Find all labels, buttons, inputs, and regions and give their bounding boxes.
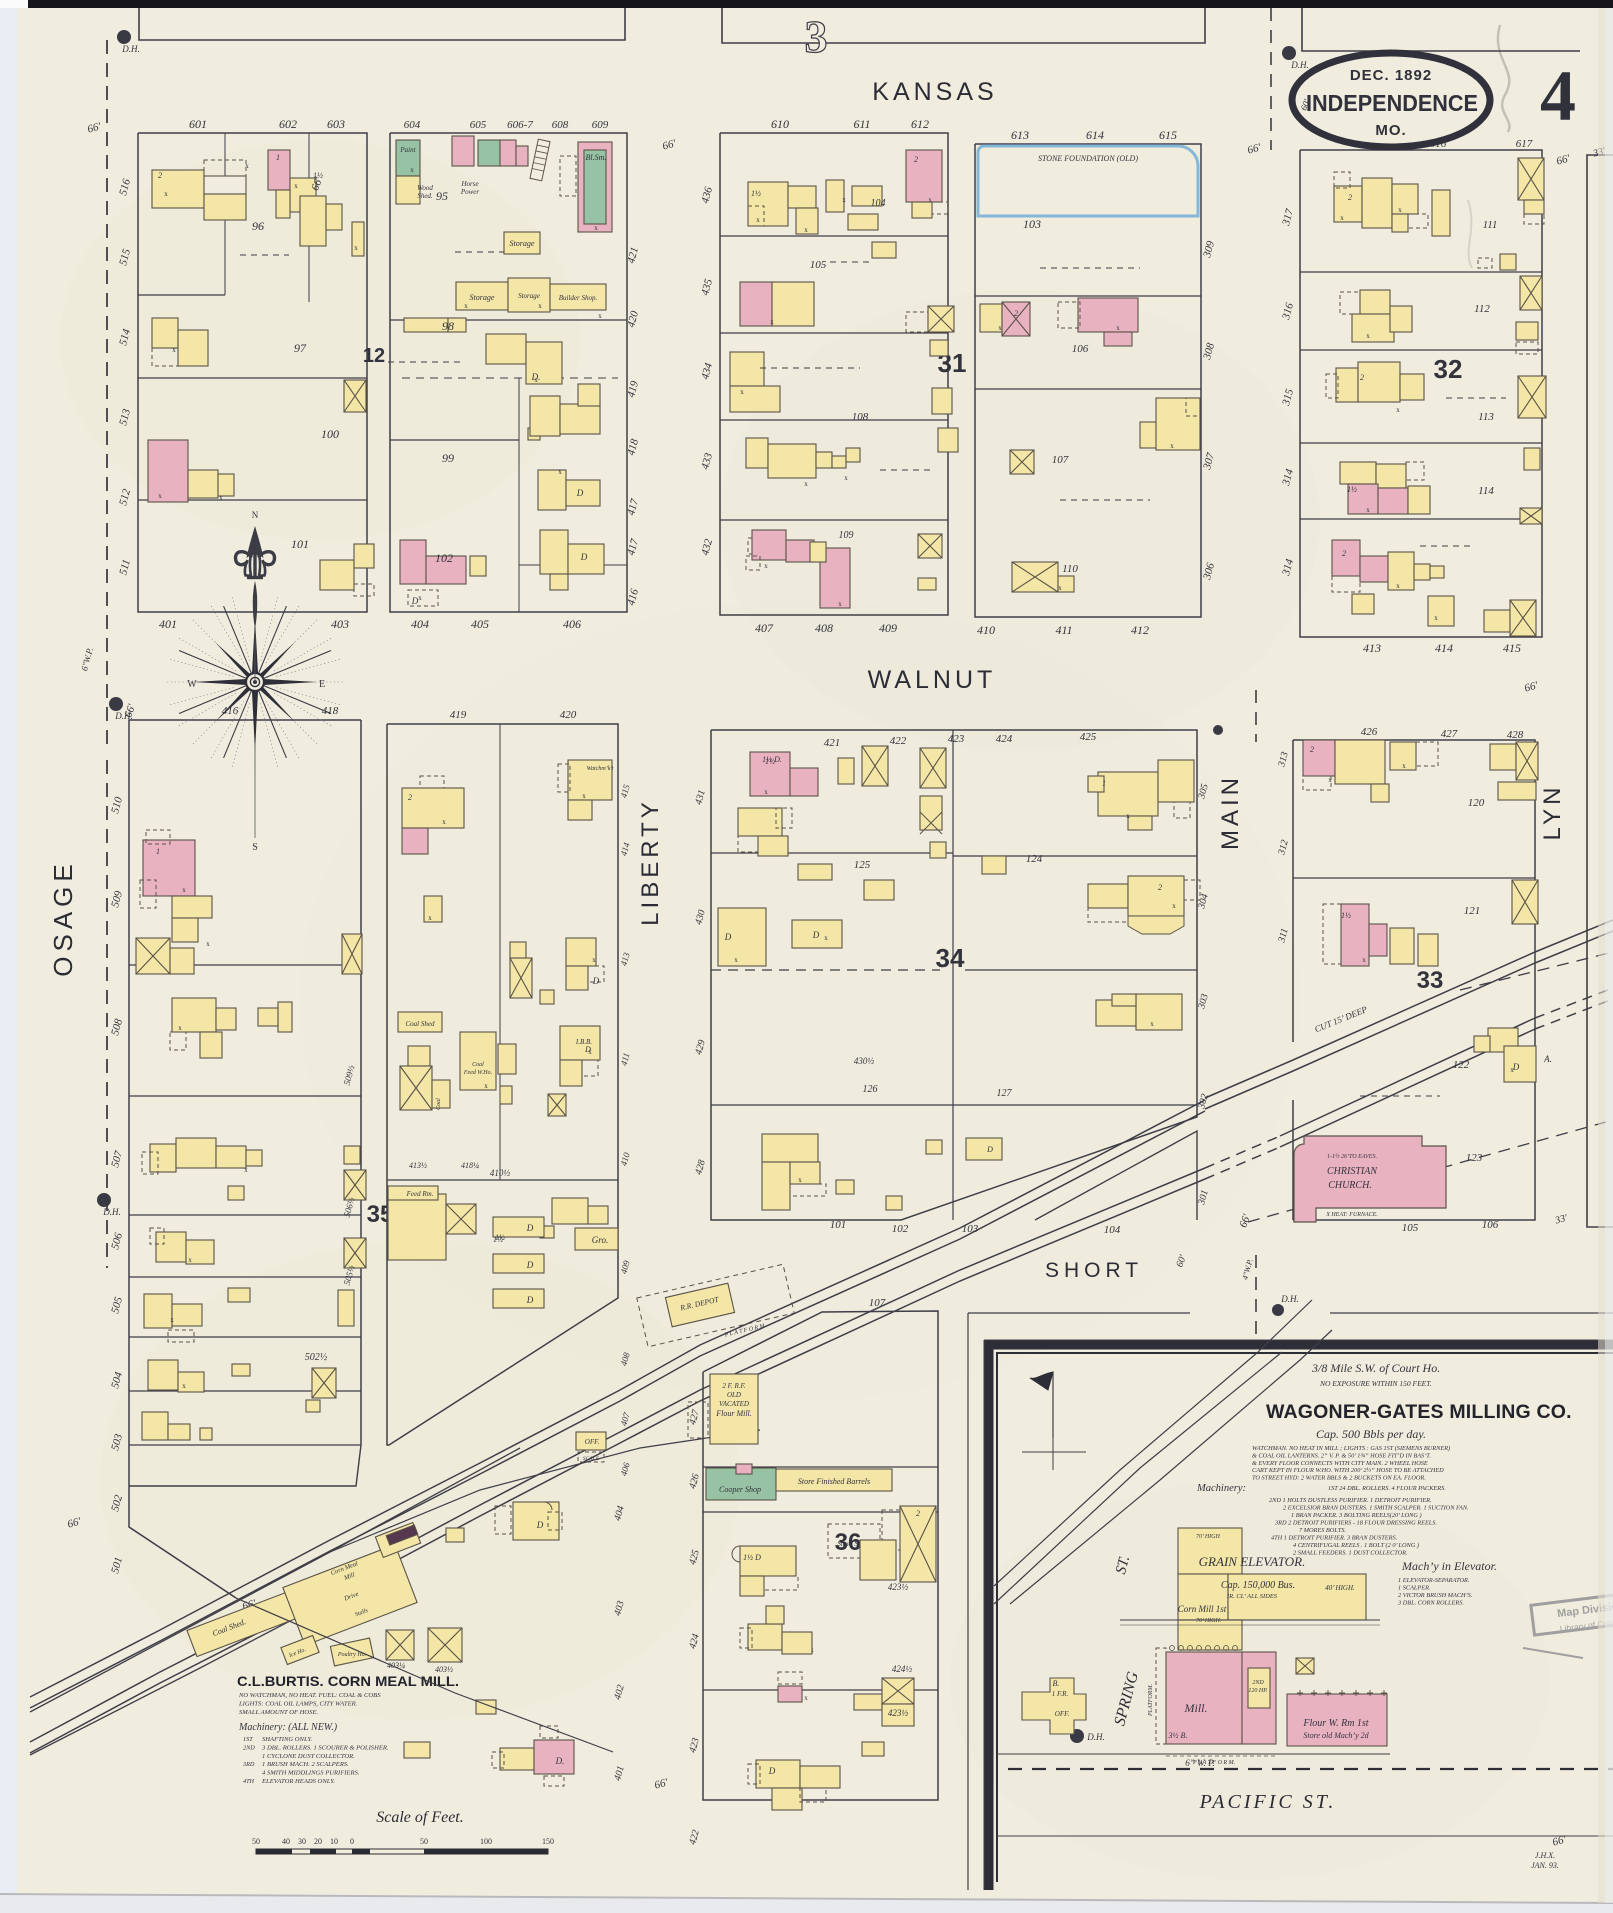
svg-text:A.: A. (1543, 1054, 1552, 1064)
svg-text:124: 124 (1026, 853, 1043, 865)
svg-text:418¼: 418¼ (461, 1161, 479, 1170)
svg-text:x: x (824, 934, 828, 942)
svg-text:608: 608 (552, 119, 569, 131)
svg-text:Machinery:: Machinery: (1196, 1483, 1246, 1494)
svg-text:x: x (1116, 324, 1120, 332)
svg-text:Scale of Feet.: Scale of Feet. (376, 1809, 464, 1826)
svg-text:WATCHMAN. NO HEAT IN MILL ; LI: WATCHMAN. NO HEAT IN MILL ; LIGHTS : GAS… (1252, 1445, 1450, 1452)
svg-text:120: 120 (1468, 797, 1485, 809)
svg-text:x: x (740, 388, 744, 396)
svg-text:405: 405 (471, 617, 489, 631)
svg-text:Power: Power (460, 188, 480, 196)
svg-text:414: 414 (1435, 641, 1453, 655)
svg-text:101: 101 (291, 537, 309, 551)
svg-text:100: 100 (321, 427, 339, 441)
svg-text:Watchm’k’t: Watchm’k’t (587, 766, 614, 772)
svg-text:x: x (1510, 1066, 1514, 1074)
svg-text:x: x (844, 474, 848, 482)
svg-text:1½: 1½ (1341, 911, 1351, 920)
svg-text:430½: 430½ (854, 1056, 875, 1066)
svg-text:102: 102 (435, 551, 453, 565)
svg-text:x: x (170, 1316, 174, 1324)
svg-text:Machinery: (ALL NEW.): Machinery: (ALL NEW.) (238, 1722, 338, 1733)
svg-text:C.L.BURTIS. CORN MEAL MILL.: C.L.BURTIS. CORN MEAL MILL. (237, 1673, 459, 1689)
svg-text:2: 2 (916, 1509, 920, 1518)
svg-text:GRAIN ELEVATOR.: GRAIN ELEVATOR. (1199, 1554, 1306, 1569)
svg-text:113: 113 (1478, 411, 1494, 423)
svg-text:LIGHTS: COAL OIL LAMPS, CITY: LIGHTS: COAL OIL LAMPS, CITY WATER. (238, 1701, 358, 1708)
svg-text:SMALL AMOUNT OF HOSE.: SMALL AMOUNT OF HOSE. (239, 1709, 318, 1716)
svg-text:x: x (592, 956, 596, 964)
svg-text:OFF.: OFF. (1055, 1710, 1070, 1718)
svg-text:95: 95 (436, 189, 448, 203)
svg-text:2: 2 (1348, 193, 1352, 202)
svg-text:50: 50 (420, 1837, 428, 1846)
svg-text:OLD: OLD (727, 1391, 741, 1399)
svg-text:99: 99 (442, 451, 454, 465)
svg-text:606-7: 606-7 (507, 119, 533, 131)
svg-text:70’ HIGH: 70’ HIGH (1196, 1534, 1220, 1540)
svg-text:110: 110 (1062, 563, 1078, 575)
svg-text:x: x (1328, 776, 1332, 784)
svg-text:x: x (294, 182, 298, 190)
svg-text:7 MORES BOLTS.: 7 MORES BOLTS. (1299, 1527, 1346, 1534)
svg-text:S: S (252, 842, 258, 853)
svg-text:3/8 Mile S.W. of Court Ho.: 3/8 Mile S.W. of Court Ho. (1311, 1361, 1440, 1375)
svg-text:3½ B.: 3½ B. (1168, 1731, 1188, 1740)
svg-text:2: 2 (1360, 373, 1364, 382)
svg-text:x: x (1398, 206, 1402, 214)
svg-text:Horse: Horse (460, 180, 478, 188)
svg-text:120 HP.: 120 HP. (1248, 1688, 1267, 1694)
svg-text:2: 2 (1310, 745, 1314, 754)
svg-text:106: 106 (1482, 1219, 1499, 1231)
svg-text:Bl.Sm.: Bl.Sm. (586, 153, 607, 162)
svg-text:424: 424 (996, 733, 1013, 745)
svg-text:3 DBL. ROLLERS. 1 SCOURER & PO: 3 DBL. ROLLERS. 1 SCOURER & POLISHER. (261, 1744, 389, 1751)
svg-text:1½ D: 1½ D (743, 1553, 761, 1562)
svg-text:x: x (838, 600, 842, 608)
svg-text:Paint: Paint (399, 146, 416, 154)
svg-text:x: x (1366, 332, 1370, 340)
svg-text:x: x (770, 318, 774, 326)
svg-text:420: 420 (560, 709, 577, 721)
svg-text:401: 401 (159, 617, 177, 631)
svg-text:103: 103 (962, 1223, 979, 1235)
svg-text:D: D (576, 488, 584, 498)
svg-text:x: x (484, 1082, 488, 1090)
svg-text:x: x (1058, 584, 1062, 592)
svg-text:x: x (598, 312, 602, 320)
svg-text:112: 112 (1474, 303, 1490, 315)
svg-text:601: 601 (189, 117, 207, 131)
svg-text:410: 410 (977, 623, 995, 637)
svg-text:1ST 24 DBL. ROLLERS. 4 FLOUR: 1ST 24 DBL. ROLLERS. 4 FLOUR PACKERS. (1328, 1485, 1446, 1492)
svg-text:D: D (526, 1295, 534, 1305)
svg-text:x: x (1126, 812, 1130, 820)
svg-text:Gro.: Gro. (592, 1235, 608, 1245)
svg-text:1½: 1½ (765, 757, 775, 766)
svg-text:MO.: MO. (1375, 122, 1406, 139)
svg-text:Storage: Storage (510, 239, 535, 248)
svg-text:Corn Mill 1st: Corn Mill 1st (1178, 1604, 1227, 1614)
svg-text:x: x (428, 914, 432, 922)
svg-text:x: x (1396, 406, 1400, 414)
svg-text:x: x (464, 302, 468, 310)
svg-text:x: x (172, 346, 176, 354)
svg-text:WALNUT: WALNUT (868, 666, 997, 694)
svg-text:D.H.: D.H. (1290, 60, 1309, 70)
svg-text:D.H.: D.H. (1086, 1732, 1105, 1742)
svg-text:105: 105 (1402, 1222, 1419, 1234)
svg-text:x: x (534, 376, 538, 384)
svg-text:150: 150 (542, 1837, 554, 1846)
svg-text:x: x (178, 1024, 182, 1032)
svg-text:411: 411 (1055, 623, 1072, 637)
svg-text:1 CYCLONE DUST COLLECTOR.: 1 CYCLONE DUST COLLECTOR. (262, 1753, 355, 1760)
svg-text:MAIN: MAIN (1217, 774, 1244, 850)
svg-text:108: 108 (852, 411, 869, 423)
svg-text:x: x (219, 494, 223, 502)
svg-text:D: D (812, 930, 820, 940)
svg-text:40: 40 (282, 1837, 290, 1846)
svg-text:2ND: 2ND (1252, 1680, 1264, 1686)
svg-text:Coal: Coal (436, 1098, 442, 1110)
svg-text:96: 96 (252, 219, 264, 233)
svg-text:1½: 1½ (1347, 485, 1357, 494)
svg-text:SCALE: SCALE (583, 1456, 600, 1462)
svg-text:Flour W. Rm 1st: Flour W. Rm 1st (1302, 1718, 1368, 1729)
svg-text:109: 109 (839, 530, 854, 541)
svg-text:4 SMITH MIDDLINGS PURIFIERS.: 4 SMITH MIDDLINGS PURIFIERS. (262, 1770, 360, 1777)
svg-text:x: x (1366, 506, 1370, 514)
svg-text:102: 102 (892, 1223, 909, 1235)
svg-text:424½: 424½ (892, 1664, 913, 1674)
svg-text:426: 426 (1361, 726, 1378, 738)
svg-text:x: x (1150, 1020, 1154, 1028)
svg-text:409: 409 (879, 621, 897, 635)
svg-text:605: 605 (470, 119, 487, 131)
svg-text:x: x (206, 940, 210, 948)
svg-text:122: 122 (1453, 1059, 1470, 1071)
svg-text:408: 408 (815, 621, 833, 635)
svg-text:40’ HIGH.: 40’ HIGH. (1325, 1584, 1355, 1592)
svg-text:DEC. 1892: DEC. 1892 (1350, 67, 1432, 84)
svg-text:421: 421 (824, 737, 841, 749)
svg-text:125: 125 (854, 859, 871, 871)
svg-text:33: 33 (1417, 967, 1444, 994)
svg-text:D.H.: D.H. (121, 44, 140, 54)
svg-text:Flour Mill.: Flour Mill. (715, 1409, 752, 1418)
svg-text:34: 34 (936, 943, 965, 973)
svg-text:x: x (164, 190, 168, 198)
svg-text:127: 127 (997, 1088, 1013, 1099)
svg-text:N: N (252, 510, 259, 520)
svg-text:D.H.: D.H. (102, 1207, 121, 1217)
svg-text:KANSAS: KANSAS (872, 78, 997, 106)
svg-text:Coal Shed: Coal Shed (406, 1020, 435, 1028)
svg-text:x: x (798, 1176, 802, 1184)
svg-text:423: 423 (948, 733, 965, 745)
svg-text:2: 2 (1014, 309, 1018, 318)
svg-text:x: x (1170, 442, 1174, 450)
svg-text:x: x (764, 562, 768, 570)
svg-text:x: x (804, 226, 808, 234)
svg-text:611: 611 (853, 117, 870, 131)
svg-text:10: 10 (330, 1837, 338, 1846)
svg-text:70’ HIGH.: 70’ HIGH. (1196, 1618, 1221, 1624)
svg-text:107: 107 (1052, 454, 1069, 466)
svg-text:TO STREET HYD: 2 WATER BBLS: TO STREET HYD: 2 WATER BBLS & 2 BUCKETS … (1252, 1475, 1426, 1482)
svg-text:x: x (756, 216, 760, 224)
svg-text:x: x (764, 788, 768, 796)
svg-text:413½: 413½ (409, 1161, 427, 1170)
svg-text:410½: 410½ (490, 1168, 511, 1178)
svg-text:x: x (158, 492, 162, 500)
svg-text:617: 617 (1516, 138, 1533, 150)
svg-text:423½: 423½ (888, 1708, 909, 1718)
svg-text:2: 2 (158, 171, 162, 180)
svg-text:1: 1 (156, 847, 160, 856)
svg-text:32: 32 (1434, 354, 1463, 384)
svg-text:x: x (804, 480, 808, 488)
svg-text:4: 4 (1540, 56, 1576, 136)
svg-text:x: x (182, 1382, 186, 1390)
svg-text:106: 106 (1072, 343, 1089, 355)
svg-text:2 SMALL FEEDERS. 1 DUST COLLE: 2 SMALL FEEDERS. 1 DUST COLLECTOR. (1293, 1550, 1408, 1557)
svg-text:2: 2 (1158, 883, 1162, 892)
svg-text:Cap. 150,000 Bus.: Cap. 150,000 Bus. (1221, 1580, 1295, 1591)
svg-text:121: 121 (1464, 905, 1481, 917)
svg-text:LYN: LYN (1539, 784, 1566, 841)
svg-text:428: 428 (1507, 729, 1524, 741)
svg-text:2 F. R.F.: 2 F. R.F. (722, 1382, 746, 1390)
svg-text:403: 403 (331, 617, 349, 631)
svg-text:3: 3 (805, 11, 828, 62)
svg-text:1½: 1½ (751, 189, 761, 198)
svg-text:Storage: Storage (518, 292, 540, 300)
svg-text:Builder Shop.: Builder Shop. (559, 294, 598, 302)
svg-text:SHAFTING ONLY.: SHAFTING ONLY. (262, 1736, 313, 1743)
svg-text:1 BRUSH MACH. 2 SCALPERS.: 1 BRUSH MACH. 2 SCALPERS. (262, 1761, 349, 1768)
svg-text:2ND: 2ND (243, 1744, 255, 1751)
svg-text:B.: B. (1053, 1679, 1060, 1688)
svg-text:x: x (734, 956, 738, 964)
svg-text:105: 105 (810, 259, 827, 271)
svg-text:1ST: 1ST (243, 1736, 253, 1743)
svg-text:50: 50 (252, 1837, 260, 1846)
svg-text:1: 1 (276, 153, 280, 162)
svg-text:12: 12 (363, 345, 385, 367)
svg-text:x: x (998, 324, 1002, 332)
svg-text:602: 602 (279, 117, 297, 131)
svg-text:& EVERY FLOOR CONNECTS WITH CI: & EVERY FLOOR CONNECTS WITH CITY MAIN. 2… (1252, 1460, 1428, 1467)
svg-text:& COAL OIL LANTERNS. 2” V. P.: & COAL OIL LANTERNS. 2” V. P. & 50’ 1¾” … (1252, 1452, 1431, 1459)
svg-text:403¼: 403¼ (387, 1661, 405, 1670)
svg-text:98: 98 (442, 319, 454, 333)
svg-text:107: 107 (869, 1297, 886, 1309)
svg-text:1 ELEVATOR-SEPARATOR.: 1 ELEVATOR-SEPARATOR. (1398, 1577, 1469, 1584)
svg-text:CHRISTIAN: CHRISTIAN (1327, 1166, 1378, 1177)
svg-text:2: 2 (914, 155, 918, 164)
svg-text:423½: 423½ (888, 1582, 909, 1592)
svg-text:Feed Rm.: Feed Rm. (406, 1190, 434, 1198)
svg-text:104: 104 (871, 198, 886, 209)
svg-text:INDEPENDENCE: INDEPENDENCE (1306, 90, 1478, 116)
svg-text:PLATFORM.: PLATFORM. (1148, 1684, 1154, 1717)
svg-text:OFF.: OFF. (585, 1438, 600, 1446)
svg-text:2 EXCELSIOR BRAN DUSTERS. 1 S: 2 EXCELSIOR BRAN DUSTERS. 1 SMITH SCALPE… (1283, 1505, 1469, 1512)
svg-text:D: D (724, 932, 732, 942)
svg-text:Cap. 500 Bbls per day.: Cap. 500 Bbls per day. (1316, 1427, 1426, 1441)
svg-text:OSAGE: OSAGE (48, 859, 78, 976)
svg-text:x: x (588, 1048, 592, 1056)
svg-text:0: 0 (350, 1837, 354, 1846)
svg-text:Shed.: Shed. (417, 192, 433, 200)
svg-text:2 VICTOR BRUSH MACH’S.: 2 VICTOR BRUSH MACH’S. (1398, 1592, 1472, 1599)
svg-text:1-1½ 26’TO EAVES.: 1-1½ 26’TO EAVES. (1327, 1153, 1377, 1160)
svg-text:E: E (319, 679, 325, 690)
svg-text:604: 604 (404, 119, 421, 131)
svg-text:615: 615 (1159, 128, 1177, 142)
svg-text:WAGONER-GATES MILLING CO.: WAGONER-GATES MILLING CO. (1266, 1401, 1572, 1423)
svg-text:4TH 1 DETROIT PURIFIER. 3 BR: 4TH 1 DETROIT PURIFIER. 3 BRAN DUSTERS. (1271, 1535, 1397, 1542)
svg-text:30: 30 (298, 1837, 306, 1846)
svg-text:IR. CL’ ALL SIDES: IR. CL’ ALL SIDES (1226, 1593, 1278, 1600)
svg-text:x: x (842, 196, 846, 204)
svg-text:Coal: Coal (472, 1062, 484, 1068)
svg-text:x: x (1172, 902, 1176, 910)
svg-text:x: x (928, 196, 932, 204)
svg-text:W: W (187, 679, 197, 690)
svg-text:4 CENTRIFUGAL REELS . 1 BOLT (: 4 CENTRIFUGAL REELS . 1 BOLT (2 0’ LONG … (1293, 1542, 1419, 1549)
svg-text:LIBERTY: LIBERTY (637, 798, 664, 926)
svg-text:PACIFIC ST.: PACIFIC ST. (1199, 1791, 1337, 1813)
svg-text:114: 114 (1478, 485, 1494, 497)
svg-text:609: 609 (592, 119, 609, 131)
svg-text:104: 104 (1104, 1224, 1121, 1236)
svg-text:JAN. 93.: JAN. 93. (1531, 1861, 1559, 1870)
svg-text:x: x (244, 1166, 248, 1174)
svg-text:D: D (526, 1223, 534, 1233)
svg-text:NO WATCHMAN, NO HEAT. FUEL: CO: NO WATCHMAN, NO HEAT. FUEL: COAL & COBS (238, 1692, 381, 1699)
svg-text:613: 613 (1011, 128, 1029, 142)
svg-text:610: 610 (771, 117, 789, 131)
svg-text:3RD: 3RD (242, 1761, 255, 1768)
svg-text:D: D (768, 1766, 776, 1776)
svg-text:20: 20 (314, 1837, 322, 1846)
svg-text:603: 603 (327, 117, 345, 131)
svg-text:J.H.X.: J.H.X. (1535, 1851, 1555, 1860)
svg-text:6” W. P.: 6” W. P. (1185, 1758, 1215, 1768)
svg-text:x: x (354, 244, 358, 252)
svg-text:D: D (526, 1260, 534, 1270)
svg-text:D: D (592, 976, 600, 986)
svg-text:103: 103 (1023, 217, 1041, 231)
svg-text:1 F.R.: 1 F.R. (1052, 1690, 1069, 1698)
svg-text:4TH: 4TH (243, 1778, 255, 1785)
svg-text:D: D (536, 1520, 544, 1530)
svg-text:1: 1 (1102, 779, 1106, 788)
svg-text:x: x (418, 594, 422, 602)
svg-text:Wood: Wood (417, 184, 433, 192)
svg-text:VACATED: VACATED (719, 1400, 749, 1408)
svg-text:2ND 1 HOLTS DUSTLESS PURIFI: 2ND 1 HOLTS DUSTLESS PURIFIER. 1 DETROIT… (1269, 1497, 1432, 1504)
svg-text:D.H.: D.H. (1280, 1294, 1299, 1304)
svg-text:101: 101 (830, 1219, 847, 1231)
svg-text:x: x (1362, 956, 1366, 964)
svg-text:D.: D. (555, 1756, 565, 1766)
svg-text:STONE FOUNDATION (OLD): STONE FOUNDATION (OLD) (1038, 154, 1138, 163)
svg-text:x: x (804, 1694, 808, 1702)
svg-text:x: x (1396, 582, 1400, 590)
svg-text:425: 425 (1080, 731, 1097, 743)
svg-text:ELEVATOR HEADS ONLY.: ELEVATOR HEADS ONLY. (261, 1778, 335, 1785)
svg-text:Mill.: Mill. (1184, 1701, 1208, 1715)
svg-text:404: 404 (411, 617, 429, 631)
svg-text:CHURCH.: CHURCH. (1328, 1180, 1372, 1191)
svg-text:614: 614 (1086, 128, 1104, 142)
svg-text:502½: 502½ (305, 1352, 328, 1363)
svg-text:97: 97 (294, 341, 307, 355)
svg-text:427: 427 (1441, 728, 1458, 740)
svg-text:412: 412 (1131, 623, 1149, 637)
svg-text:2: 2 (1342, 549, 1346, 558)
svg-text:1½: 1½ (493, 1235, 503, 1244)
svg-text:x: x (188, 1256, 192, 1264)
svg-text:413: 413 (1363, 641, 1381, 655)
svg-text:Store old Mach’y 2d: Store old Mach’y 2d (1303, 1731, 1369, 1740)
svg-text:x: x (1402, 762, 1406, 770)
svg-text:x: x (1434, 614, 1438, 622)
svg-text:415: 415 (1503, 641, 1521, 655)
svg-text:422: 422 (890, 735, 907, 747)
svg-text:Store Finished Barrels: Store Finished Barrels (798, 1477, 870, 1486)
svg-text:NO EXPOSURE WITHIN 150 FEET.: NO EXPOSURE WITHIN 150 FEET. (1319, 1379, 1432, 1388)
svg-text:406: 406 (563, 617, 581, 631)
svg-text:2: 2 (408, 793, 412, 802)
svg-text:x: x (582, 792, 586, 800)
svg-text:D: D (986, 1145, 993, 1154)
svg-text:407: 407 (755, 621, 774, 635)
svg-text:419: 419 (450, 709, 467, 721)
svg-text:1 SCALPER.: 1 SCALPER. (1398, 1585, 1431, 1592)
svg-text:x: x (594, 224, 598, 232)
svg-text:Cooper Shop: Cooper Shop (719, 1485, 761, 1494)
svg-text:x: x (1340, 214, 1344, 222)
svg-text:111: 111 (1483, 219, 1498, 231)
svg-text:SHORT: SHORT (1045, 1259, 1143, 1282)
svg-text:100: 100 (480, 1837, 492, 1846)
svg-text:126: 126 (863, 1084, 878, 1095)
svg-text:x: x (442, 818, 446, 826)
svg-text:x: x (182, 886, 186, 894)
svg-text:Storage: Storage (470, 293, 495, 302)
svg-text:x: x (558, 468, 562, 476)
svg-text:D: D (580, 552, 588, 562)
svg-text:x: x (538, 302, 542, 310)
svg-text:1 BRAN PACKER. 3 BOLTING REE: 1 BRAN PACKER. 3 BOLTING REELS(20’ LONG … (1291, 1512, 1422, 1519)
svg-text:x: x (410, 166, 414, 174)
svg-text:x: x (245, 162, 249, 170)
svg-text:Feed W.Ho.: Feed W.Ho. (463, 1070, 492, 1076)
svg-text:612: 612 (911, 117, 929, 131)
svg-text:3 DBL. CORN ROLLERS.: 3 DBL. CORN ROLLERS. (1397, 1600, 1464, 1607)
svg-text:CART KEPT IN FLOUR W.HO. WITH: CART KEPT IN FLOUR W.HO. WITH 200’ 2½” H… (1252, 1467, 1444, 1474)
svg-text:123: 123 (1466, 1152, 1483, 1164)
svg-text:3RD 2 DETROIT PURIFIERS - 18: 3RD 2 DETROIT PURIFIERS - 18 FLOUR DRESS… (1274, 1520, 1437, 1527)
svg-text:X HEAT: FURNACE.: X HEAT: FURNACE. (1325, 1212, 1378, 1218)
